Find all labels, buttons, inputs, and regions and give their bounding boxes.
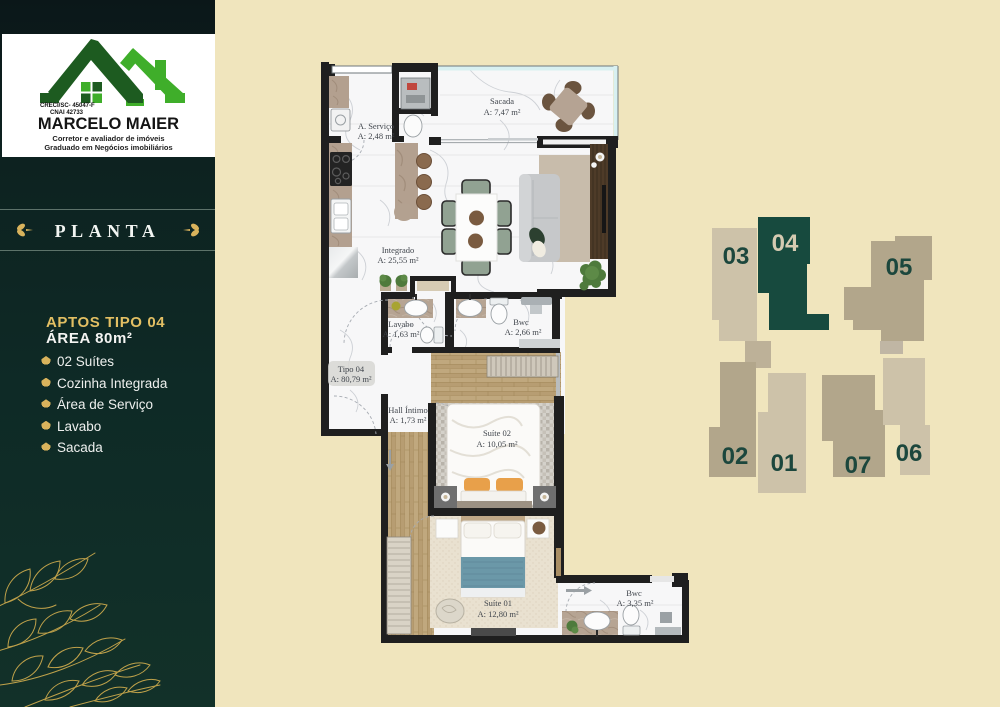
svg-text:04: 04 xyxy=(772,230,799,257)
svg-text:Tipo 04: Tipo 04 xyxy=(338,364,365,374)
svg-text:A: 2,48 m²: A: 2,48 m² xyxy=(358,131,395,141)
svg-text:06: 06 xyxy=(896,440,923,467)
svg-text:A: 1,63 m²: A: 1,63 m² xyxy=(383,329,420,339)
svg-text:A. Serviço: A. Serviço xyxy=(358,121,394,131)
svg-text:01: 01 xyxy=(771,450,798,477)
svg-text:Suíte 01: Suíte 01 xyxy=(484,598,512,608)
svg-text:A: 2,66 m²: A: 2,66 m² xyxy=(505,327,542,337)
svg-text:A: 3,35 m²: A: 3,35 m² xyxy=(617,598,654,608)
svg-text:03: 03 xyxy=(723,243,750,270)
svg-text:05: 05 xyxy=(886,254,913,281)
svg-text:A: 80,79 m²: A: 80,79 m² xyxy=(330,374,371,384)
svg-text:Bwc: Bwc xyxy=(626,588,642,598)
svg-text:07: 07 xyxy=(845,452,872,479)
svg-text:Integrado: Integrado xyxy=(382,245,415,255)
svg-text:A: 25,55 m²: A: 25,55 m² xyxy=(377,255,418,265)
svg-text:A: 12,80 m²: A: 12,80 m² xyxy=(477,609,518,619)
svg-text:Hall Íntimo: Hall Íntimo xyxy=(388,405,427,415)
svg-text:Sacada: Sacada xyxy=(490,96,514,106)
svg-text:A: 7,47 m²: A: 7,47 m² xyxy=(484,107,521,117)
svg-text:Bwc: Bwc xyxy=(513,317,529,327)
svg-text:Lavabo: Lavabo xyxy=(388,319,414,329)
svg-text:A: 10,05 m²: A: 10,05 m² xyxy=(476,439,517,449)
svg-text:A: 1,73 m²: A: 1,73 m² xyxy=(390,415,427,425)
svg-text:02: 02 xyxy=(722,443,749,470)
svg-text:Suíte 02: Suíte 02 xyxy=(483,428,511,438)
